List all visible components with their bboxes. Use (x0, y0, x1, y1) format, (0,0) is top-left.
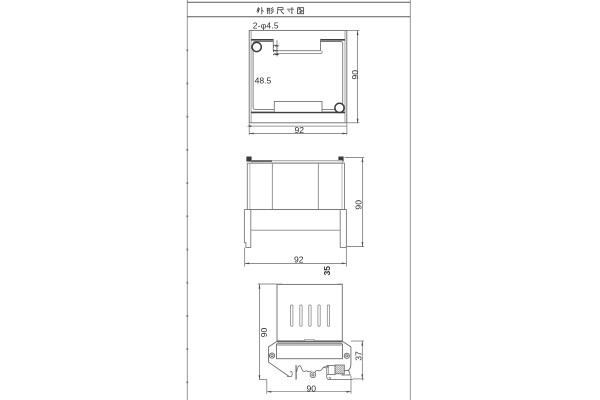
svg-text:2-φ4.5: 2-φ4.5 (253, 20, 279, 30)
svg-text:35: 35 (322, 266, 332, 276)
svg-text:90: 90 (350, 70, 360, 80)
svg-text:37: 37 (354, 351, 364, 361)
svg-text:90: 90 (259, 328, 269, 338)
svg-text:48.5: 48.5 (255, 75, 272, 85)
svg-text:13.3: 13.3 (274, 44, 280, 56)
svg-text:90: 90 (307, 383, 317, 393)
svg-text:90: 90 (354, 200, 364, 210)
svg-text:92: 92 (294, 254, 304, 264)
svg-text:92: 92 (295, 125, 305, 135)
